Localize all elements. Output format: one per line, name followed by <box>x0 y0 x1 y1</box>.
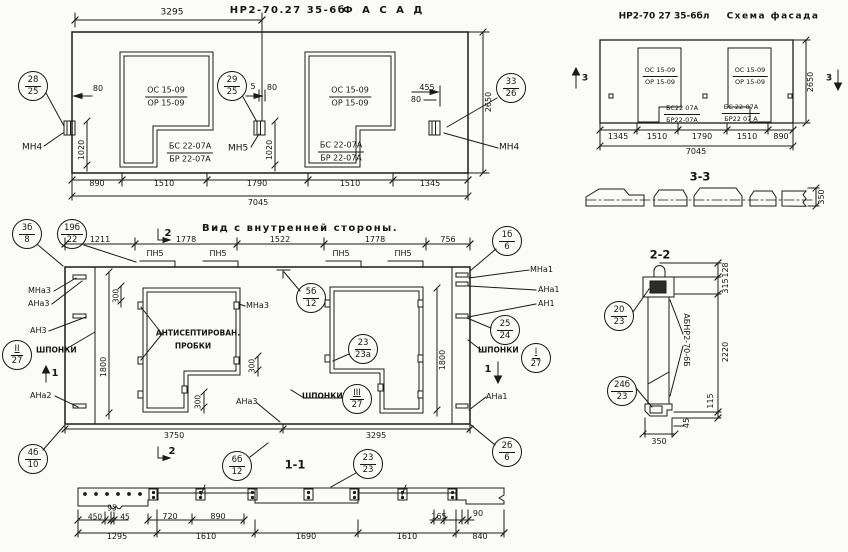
inner-dim-1778a: 1778 <box>176 236 196 244</box>
dim-115: 115 <box>707 393 715 408</box>
facade-dim-total: 7045 <box>248 199 268 207</box>
callout-2b-6: 2б6 <box>492 437 522 467</box>
label-ana3-left: АНа3 <box>28 300 49 308</box>
facade-win2-block-label: БС 22-07А БР 22-07А <box>318 142 364 163</box>
label-mna3-left: МНа3 <box>28 287 51 295</box>
schema-mark-3-left: 3 <box>582 75 588 84</box>
win2-frame: ОР 15-09 <box>329 98 371 108</box>
facade-dim-80-left: 80 <box>93 85 103 93</box>
mark-1-left: 1 <box>52 369 59 379</box>
facade-win1-block-label: БС 22-07А БР 22-07А <box>167 143 213 164</box>
label-an1-right: АН1 <box>538 300 555 308</box>
facade-dim-890: 890 <box>89 180 104 188</box>
facade-anchor-mn4-right: МН4 <box>499 144 519 153</box>
facade-anchor-mn4-left: МН4 <box>22 144 42 153</box>
facade-win1-label: ОС 15-09 ОР 15-09 <box>145 87 187 108</box>
inner-view-panel <box>38 229 536 460</box>
section-2-2-vlabel: АБНР2-70-6Б <box>682 313 690 366</box>
label-mna3-window: МНа3 <box>246 302 269 310</box>
facade-dim-1020-left: 1020 <box>78 140 86 160</box>
facade-title-code: НР2-70.27 35-6б <box>230 6 346 16</box>
label-mna1-right: МНа1 <box>530 266 553 274</box>
joist-pn5-2: ПН5 <box>209 250 226 258</box>
win1-beam: БР 22-07А <box>167 154 213 164</box>
dim-45: 45 <box>120 513 130 521</box>
schema-dim-890: 890 <box>773 133 788 141</box>
inner-dim-300-b: 300 <box>248 359 256 373</box>
callout-1b-6: 1б6 <box>492 226 522 256</box>
callout-23-23a: 2323а <box>348 334 378 364</box>
mark-2-top: 2 <box>165 229 172 239</box>
inner-dim-3295: 3295 <box>366 432 386 440</box>
inner-dim-1522: 1522 <box>270 236 290 244</box>
facade-dim-5: 5 <box>250 83 255 91</box>
rebar-dots <box>84 493 142 496</box>
dim-2220: 2220 <box>722 342 730 362</box>
blueprint-sheet: НР2-70.27 35-6б Ф А С А Д 3295 80 5 80 8… <box>0 0 848 552</box>
schema-dim-1345: 1345 <box>608 133 628 141</box>
dim-720: 720 <box>162 513 177 521</box>
callout-24b-23: 24б23 <box>607 376 637 406</box>
schema-dim-1510b: 1510 <box>737 133 757 141</box>
schema-dim-1790: 1790 <box>692 133 712 141</box>
callout-23-23: 2323 <box>353 449 383 479</box>
facade-dim-80-mid: 80 <box>267 84 277 92</box>
dim-1610b: 1610 <box>397 533 417 541</box>
schema-dim-total: 7045 <box>686 148 706 156</box>
facade-dim-1510b: 1510 <box>340 180 360 188</box>
facade-dim-80-right: 80 <box>411 96 421 104</box>
callout-19b-22: 19б22 <box>57 219 87 249</box>
facade-anchor-mn5: МН5 <box>228 145 248 154</box>
win2-sash: ОС 15-09 <box>329 87 371 98</box>
mark-2-bottom: 2 <box>169 447 176 457</box>
callout-33-26: 3326 <box>496 73 526 103</box>
inner-dim-300-c: 300 <box>194 395 202 409</box>
dim-890: 890 <box>210 513 225 521</box>
schema-title-word: Схема фасада <box>727 13 820 22</box>
label-shponki-left: ШПОНКИ <box>36 346 77 354</box>
note-antiseptic-line1: АНТИСЕПТИРОВАН. <box>156 329 240 337</box>
inner-dim-300-a: 300 <box>112 289 120 303</box>
win1-block: БС 22-07А <box>167 143 213 154</box>
facade-panel <box>44 13 498 200</box>
schema-win2-label: ОС 15-09 ОР 15-09 <box>733 67 768 85</box>
inner-dim-1800-right: 1800 <box>439 350 447 370</box>
callout-20-23: 2023 <box>604 301 634 331</box>
inner-view-title: Вид с внутренней стороны. <box>202 224 398 234</box>
schema-dim-1510a: 1510 <box>647 133 667 141</box>
win1-frame: ОР 15-09 <box>145 98 187 108</box>
label-shponki-bottom: ШПОНКИ <box>302 392 343 400</box>
inner-dim-3750: 3750 <box>164 432 184 440</box>
section-2-2-profile <box>633 260 721 437</box>
schema-mark-3-right: 3 <box>826 75 832 84</box>
inner-dim-1778b: 1778 <box>365 236 385 244</box>
section-3-3-dim-350: 350 <box>818 189 826 204</box>
dim-45-sec22: 45 <box>683 418 691 428</box>
joist-pn5-1: ПН5 <box>146 250 163 258</box>
note-antiseptic-line2: ПРОБКИ <box>175 342 211 350</box>
facade-dim-1020-mid: 1020 <box>266 140 274 160</box>
schema-title-code: НР2-70 27 35-6бл <box>619 13 710 22</box>
label-shponki-right: ШПОНКИ <box>478 346 519 354</box>
dim-95: 95 <box>107 504 117 512</box>
dim-128: 128 <box>722 262 730 277</box>
callout-I-27: I27 <box>521 343 551 373</box>
callout-III-27: III27 <box>342 384 372 414</box>
label-ana2-left: АНа2 <box>30 392 51 400</box>
facade-dim-top: 3295 <box>161 9 184 18</box>
schema-dim-height: 2650 <box>807 72 815 92</box>
facade-win2-label: ОС 15-09 ОР 15-09 <box>329 87 371 108</box>
dim-1295: 1295 <box>107 533 127 541</box>
win2-block: БС 22-07А <box>318 142 364 153</box>
facade-dim-1790: 1790 <box>247 180 267 188</box>
callout-II-27: II27 <box>2 340 32 370</box>
dim-1610a: 1610 <box>196 533 216 541</box>
section-3-3-profile <box>586 185 819 209</box>
joist-pn5-3: ПН5 <box>332 250 349 258</box>
edge-anchor-marks <box>73 273 468 408</box>
schema-win1-label: ОС 15-09 ОР 15-09 <box>643 67 678 85</box>
label-ana1-right-bottom: АНа1 <box>486 393 507 401</box>
win2-beam: БР 22-07А <box>318 153 364 163</box>
section-2-2-title: 2-2 <box>650 249 671 261</box>
callout-4b-10: 4б10 <box>18 444 48 474</box>
dim-450: 450 <box>88 513 102 521</box>
inner-dim-1800-left: 1800 <box>100 357 108 377</box>
section-1-1-title: 1-1 <box>285 459 306 471</box>
inner-dim-756: 756 <box>440 236 455 244</box>
section-3-3-title: 3-3 <box>690 171 711 183</box>
callout-28-25: 2825 <box>18 71 48 101</box>
label-ana3-bottom: АНа3 <box>236 398 257 406</box>
label-an3-left: АН3 <box>30 327 47 335</box>
inner-dim-1211: 1211 <box>90 236 110 244</box>
callout-29-25: 2925 <box>217 71 247 101</box>
facade-dim-1510a: 1510 <box>154 180 174 188</box>
facade-dim-455: 455 <box>419 84 434 92</box>
callout-3b-8: 3б8 <box>12 219 42 249</box>
facade-title-word: Ф А С А Д <box>343 6 426 16</box>
callout-6b-12: 6б12 <box>222 451 252 481</box>
facade-dim-height: 2650 <box>485 92 493 112</box>
dim-350-sec22: 350 <box>651 438 666 446</box>
win1-sash: ОС 15-09 <box>145 87 187 98</box>
mark-1-right: 1 <box>485 365 492 375</box>
dim-315: 315 <box>722 278 730 293</box>
callout-25-24: 2524 <box>490 315 520 345</box>
schema-win1-block-label: БС22 07А БР22-07А <box>664 105 700 123</box>
channel-marks <box>149 489 457 500</box>
joist-pn5-4: ПН5 <box>394 250 411 258</box>
schema-win2-block-label: БС 22-07А БР22 07 А <box>722 104 760 122</box>
facade-dim-1345: 1345 <box>420 180 440 188</box>
dim-165: 165 <box>431 513 446 521</box>
dim-1690: 1690 <box>296 533 316 541</box>
callout-5b-12: 5б12 <box>296 283 326 313</box>
label-ana1-right: АНа1 <box>538 286 559 294</box>
dim-840: 840 <box>472 533 487 541</box>
dim-90: 90 <box>473 510 483 518</box>
